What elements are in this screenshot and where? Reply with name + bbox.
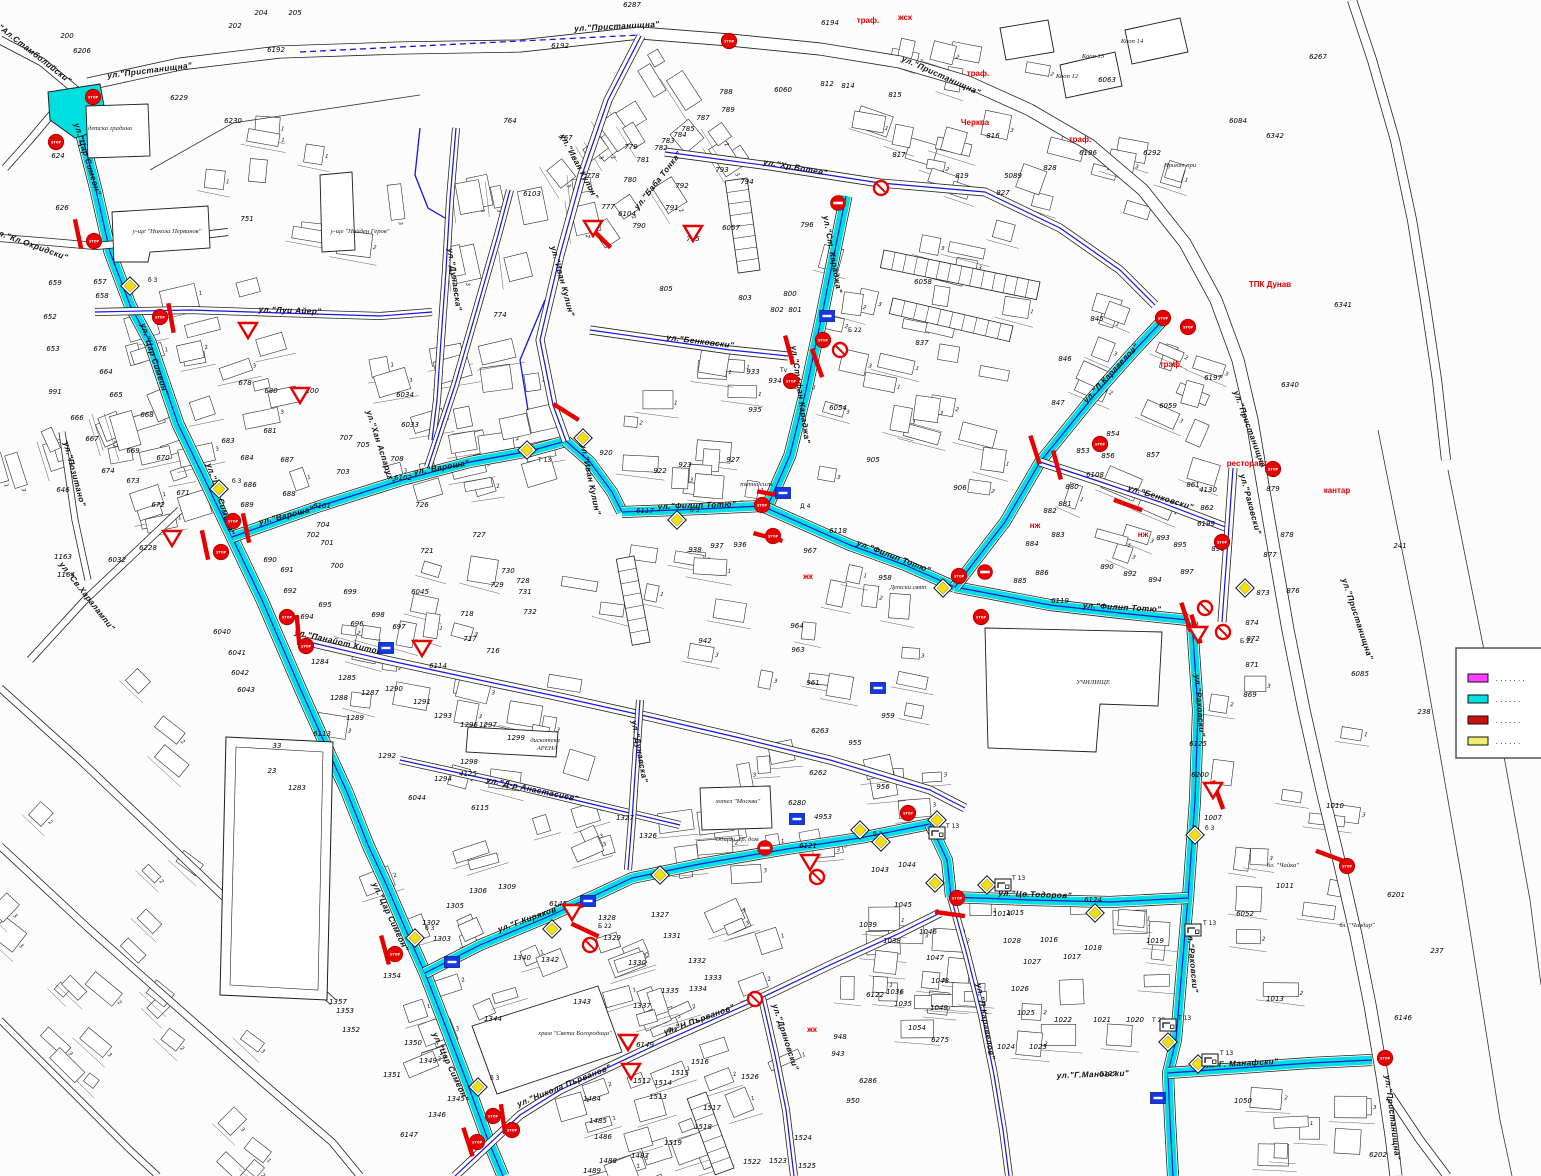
parcel-number: 793: [715, 166, 728, 174]
sign-code-label: б 3: [1205, 825, 1215, 832]
sign-code-label: б 3: [490, 1075, 500, 1082]
parcel-number: 671: [176, 489, 189, 497]
parcel-number: 6292: [1143, 149, 1161, 157]
parcel-number: 777: [601, 203, 615, 211]
parcel-number: 1010: [1326, 802, 1344, 810]
parcel-number: 884: [1025, 540, 1038, 548]
parcel-number: 624: [51, 152, 64, 160]
svg-text:3: 3: [1113, 351, 1119, 358]
stop-sign-icon: STOP: [1265, 461, 1281, 477]
parcel-number: 790: [632, 222, 646, 230]
svg-text:1: 1: [750, 1095, 755, 1102]
parcel-number: 1007: [1204, 814, 1222, 822]
parcel-number: 6084: [1229, 117, 1247, 125]
parcel-number: 694: [300, 613, 313, 621]
street-name-label: ул."Пристанищна": [1340, 576, 1375, 661]
parcel-number: 6063: [1098, 76, 1116, 84]
no-stopping-sign-icon: [748, 992, 762, 1006]
parcel-number: 927: [726, 456, 740, 464]
parcel-number: 6103: [523, 190, 541, 198]
parcel-number: 1513: [649, 1093, 667, 1101]
parcel-number: 1332: [688, 957, 706, 965]
parcel-number: 701: [320, 539, 333, 547]
place-label: хотел "Москва": [715, 798, 761, 805]
parcel-number: 1330: [628, 959, 646, 967]
parcel-number: 657: [93, 278, 107, 286]
svg-text:2: 2: [1284, 1095, 1288, 1101]
svg-text:3: 3: [932, 802, 937, 808]
red-facility-label: ТПК Дунав: [1249, 280, 1291, 289]
parcel-number: 802: [770, 306, 784, 314]
parcel-number: 684: [240, 454, 253, 462]
parcel-number: 801: [788, 306, 801, 314]
svg-text:2: 2: [607, 1081, 613, 1088]
parcel-number: 707: [339, 434, 353, 442]
no-stopping-sign-icon: [810, 870, 824, 884]
red-facility-label: траф.: [1160, 360, 1182, 369]
svg-text:3: 3: [1009, 128, 1014, 135]
parcel-number: 1519: [664, 1139, 682, 1147]
red-facility-label: траф.: [967, 69, 989, 78]
parcel-number: 1487: [631, 1152, 649, 1160]
svg-text:2: 2: [372, 245, 377, 251]
red-facility-label: жк: [806, 1025, 818, 1034]
parcel-number: 879: [1266, 485, 1280, 493]
parcel-number: 6119: [1051, 597, 1069, 605]
parcel-number: 692: [283, 587, 297, 595]
parcel-number: 1517: [703, 1104, 721, 1112]
parcel-number: 1028: [1003, 937, 1021, 945]
parcel-number: 6229: [170, 94, 188, 102]
svg-text:2: 2: [639, 420, 644, 426]
parcel-number: 1291: [413, 698, 431, 706]
svg-text:1: 1: [727, 569, 731, 575]
parcel-number: 890: [1100, 563, 1114, 571]
parcel-number: 1284: [311, 658, 329, 666]
parcel-number: 718: [460, 610, 474, 618]
legend-item: . . . . . . .: [1468, 674, 1525, 683]
parcel-number: 6043: [237, 686, 255, 694]
parcel-number: 6280: [788, 799, 806, 807]
no-entry-sign-icon: [831, 196, 846, 211]
info-plate-icon: [1202, 1054, 1218, 1066]
parcel-number: 923: [678, 461, 691, 469]
parcel-number: 6263: [811, 727, 829, 735]
svg-text:3: 3: [715, 652, 720, 658]
parcel-number: 1017: [1063, 953, 1081, 961]
parcel-number: 784: [673, 131, 686, 139]
parcel-number: 1018: [1084, 944, 1102, 952]
parcel-number: 721: [420, 547, 433, 555]
svg-text:1: 1: [281, 138, 285, 144]
red-facility-label: траф.: [857, 16, 879, 25]
svg-text:2: 2: [879, 596, 884, 602]
stop-sign-icon: STOP: [783, 373, 799, 389]
sign-code-label: Б 22: [1240, 638, 1254, 645]
parcel-number: 961: [806, 679, 819, 687]
parcel-number: 6104: [618, 210, 636, 218]
parcel-number: 6045: [411, 588, 429, 596]
parcel-number: 779: [624, 143, 638, 151]
parcel-number: 6044: [408, 794, 426, 802]
parcel-number: 828: [1043, 164, 1057, 172]
svg-text:1: 1: [632, 987, 637, 994]
legend-item-label: . . . . . .: [1496, 717, 1520, 725]
parcel-number: 819: [955, 172, 969, 180]
parcel-number: 877: [1263, 551, 1277, 559]
parcel-number: 920: [599, 449, 613, 457]
parcel-number: 33: [273, 742, 282, 750]
parcel-number: 991: [48, 388, 61, 396]
parcel-number: 800: [783, 290, 797, 298]
svg-text:STOP: STOP: [1380, 1056, 1391, 1060]
parcel-number: 959: [881, 712, 895, 720]
svg-text:STOP: STOP: [282, 615, 293, 619]
parcel-number: 1039: [859, 921, 877, 929]
street-ul-filip-totyu-6119: [955, 587, 1188, 620]
parcel-number: 1305: [446, 902, 464, 910]
parcel-number: 963: [791, 646, 804, 654]
parcel-number: 874: [1245, 619, 1258, 627]
parcel-number: 788: [719, 88, 733, 96]
place-label: Приют при: [1163, 162, 1197, 169]
sign-code-label: Т 13: [537, 457, 551, 464]
parcel-number: 1489: [583, 1167, 601, 1175]
svg-text:1: 1: [780, 933, 785, 940]
parcel-number: 6117: [636, 507, 654, 515]
parcel-number: 1344: [484, 1015, 502, 1023]
svg-text:STOP: STOP: [952, 896, 963, 900]
stop-sign-icon: STOP: [86, 233, 102, 249]
parcel-number: 6341: [1334, 301, 1352, 309]
oneway-sign-icon: [581, 896, 596, 907]
stop-sign-icon: STOP: [1377, 1050, 1393, 1066]
parcel-number: 6124: [1084, 896, 1102, 904]
parcel-number: 894: [1148, 576, 1161, 584]
svg-text:3: 3: [396, 221, 403, 226]
parcel-number: 6054: [829, 404, 847, 412]
parcel-number: 1352: [342, 1026, 360, 1034]
svg-text:3: 3: [1267, 684, 1272, 690]
parcel-number: 942: [698, 637, 712, 645]
red-facility-label: кантар: [1324, 486, 1351, 495]
parcel-number: 697: [392, 623, 406, 631]
svg-text:2: 2: [1299, 991, 1304, 997]
stop-sign-icon: STOP: [949, 890, 965, 906]
parcel-number: 943: [831, 1050, 844, 1058]
oneway-sign-icon: [379, 643, 394, 654]
parcel-number: 862: [1200, 504, 1214, 512]
sign-code-label: Т 13: [1177, 1015, 1191, 1022]
parcel-number: 688: [282, 490, 296, 498]
parcel-number: 1334: [689, 985, 707, 993]
parcel-number: 6228: [139, 544, 157, 552]
parcel-number: 933: [746, 368, 759, 376]
street-ul-ivan-kulin: [540, 36, 641, 441]
place-label: дискотека: [530, 737, 560, 744]
give-way-sign-icon: [619, 1035, 637, 1050]
parcel-number: 658: [95, 292, 109, 300]
parcel-number: 6149: [636, 1041, 654, 1049]
svg-text:1: 1: [863, 573, 867, 579]
svg-text:1: 1: [728, 370, 732, 376]
svg-text:3: 3: [940, 246, 945, 253]
stop-sign-icon: STOP: [213, 544, 229, 560]
svg-text:3: 3: [763, 868, 768, 874]
parcel-number: 6059: [1159, 402, 1177, 410]
parcel-number: 764: [503, 117, 516, 125]
parcel-number: 847: [1051, 399, 1065, 407]
parcel-number: 845: [1090, 315, 1104, 323]
parcel-number: 1343: [573, 998, 591, 1006]
street-name-label: ул."Хр.Ботев": [762, 157, 829, 177]
parcel-number: 1020: [1126, 1016, 1144, 1024]
parcel-number: 6125: [1189, 740, 1207, 748]
parcel-number: 6114: [429, 662, 447, 670]
svg-text:STOP: STOP: [51, 140, 62, 144]
parcel-number: 794: [740, 178, 753, 186]
parcel-number: 1289: [346, 714, 364, 722]
parcel-number: 704: [316, 521, 329, 529]
sign-code-label: Б 22: [598, 923, 612, 930]
parcel-number: 812: [820, 80, 834, 88]
parcel-number: 964: [790, 622, 803, 630]
svg-text:STOP: STOP: [976, 615, 987, 619]
stop-sign-icon: STOP: [1339, 858, 1355, 874]
parcel-number: 664: [99, 368, 112, 376]
parcel-number: 1025: [1017, 1009, 1035, 1017]
parcel-number: 670: [156, 454, 170, 462]
parcel-number: 906: [953, 484, 967, 492]
stop-sign-icon: STOP: [387, 946, 403, 962]
legend-item-label: . . . . . .: [1496, 696, 1520, 704]
parcel-number: 1043: [871, 866, 889, 874]
parcel-number: 1045: [894, 901, 912, 909]
svg-text:STOP: STOP: [1268, 467, 1279, 471]
legend: . .. . . . . . .. . . . . .. . . . . .. …: [1456, 648, 1541, 758]
red-facility-label: Черква: [961, 118, 990, 127]
sign-code-label: Т 13: [1202, 920, 1216, 927]
parcel-number: 1351: [383, 1071, 401, 1079]
parcel-number: 1024: [997, 1043, 1015, 1051]
svg-text:2: 2: [47, 819, 54, 826]
no-stopping-sign-icon: [583, 938, 597, 952]
svg-text:STOP: STOP: [488, 1114, 499, 1118]
svg-text:3: 3: [1224, 371, 1230, 378]
stop-sign-icon: STOP: [754, 497, 770, 513]
sign-code-label: Т 13: [1219, 1050, 1233, 1057]
parcel-number: 781: [636, 156, 649, 164]
stop-sign-icon: STOP: [485, 1108, 501, 1124]
info-plate-icon: [995, 879, 1011, 891]
parcel-number: 861: [1186, 481, 1199, 489]
parcel-number: 686: [243, 481, 257, 489]
stop-sign-icon: STOP: [48, 134, 64, 150]
parcel-number: 680: [264, 387, 278, 395]
svg-text:2: 2: [732, 1071, 738, 1078]
parcel-number: 1285: [338, 674, 356, 682]
no-entry-sign-icon: [978, 565, 993, 580]
svg-text:STOP: STOP: [1342, 864, 1353, 868]
place-label: у-ще "Никола Перванов": [132, 228, 202, 235]
parcel-number: 1331: [663, 932, 681, 940]
parcel-number: 934: [768, 377, 781, 385]
stop-sign-icon: STOP: [815, 332, 831, 348]
parcel-number: 1353: [336, 1007, 354, 1015]
sign-code-label: Тv: [779, 367, 788, 374]
svg-text:3: 3: [877, 302, 882, 309]
parcel-number: 6146: [1394, 1014, 1412, 1022]
parcel-number: 1297: [479, 721, 497, 729]
svg-text:2: 2: [646, 952, 652, 959]
parcel-number: 1027: [1023, 958, 1041, 966]
parcel-number: 6287: [623, 1, 641, 9]
svg-text:STOP: STOP: [757, 503, 768, 507]
stop-sign-icon: STOP: [225, 513, 241, 529]
svg-text:3: 3: [1178, 418, 1184, 425]
svg-text:3: 3: [19, 488, 26, 494]
parcel-number: 687: [280, 456, 294, 464]
parcel-number: 6202: [1369, 1151, 1387, 1159]
svg-text:STOP: STOP: [1183, 325, 1194, 329]
parcel-number: 626: [55, 204, 69, 212]
legend-item-label: . . . . . .: [1496, 738, 1520, 746]
parcel-number: 698: [371, 611, 385, 619]
svg-text:1: 1: [439, 626, 444, 633]
svg-text:3: 3: [280, 409, 285, 416]
stop-sign-icon: STOP: [85, 89, 101, 105]
stop-sign-icon: STOP: [900, 805, 916, 821]
place-label: Детски свят: [889, 584, 927, 591]
svg-text:STOP: STOP: [1158, 316, 1169, 320]
svg-text:3: 3: [1134, 164, 1139, 171]
parcel-number: 6041: [228, 649, 246, 657]
oneway-sign-icon: [1151, 1093, 1166, 1104]
parcel-number: 880: [1065, 483, 1079, 491]
place-label: Общин.-гр. дом: [715, 836, 759, 843]
parcel-number: 696: [350, 620, 364, 628]
parcel-number: 780: [623, 176, 637, 184]
svg-text:3: 3: [455, 1026, 461, 1033]
parcel-number: 1514: [654, 1079, 672, 1087]
parcel-number: 950: [846, 1097, 860, 1105]
place-label: УЧИЛИЩЕ: [1076, 679, 1110, 686]
no-stopping-sign-icon: [833, 343, 847, 357]
parcel-number: 857: [1146, 451, 1160, 459]
street-outer-road-ne: [1352, 0, 1446, 460]
svg-text:2: 2: [204, 344, 209, 351]
parcel-number: 892: [1123, 570, 1137, 578]
parcel-number: 668: [140, 411, 154, 419]
parcel-number: 1328: [598, 914, 616, 922]
parcel-number: 1342: [541, 956, 559, 964]
priority-road-sign-icon: [978, 876, 996, 894]
svg-text:3: 3: [12, 913, 19, 920]
sign-code-label: б 3: [148, 277, 158, 284]
parcel-number: 1516: [691, 1058, 709, 1066]
street-ul-l-karavelov-south: [951, 897, 1009, 1176]
parcel-number: 717: [463, 635, 477, 643]
parcel-number: 1303: [433, 935, 451, 943]
parcel-number: 1022: [1054, 1016, 1072, 1024]
red-facility-label: жк: [802, 572, 814, 581]
parcel-number: 1337: [633, 1002, 651, 1010]
give-way-sign-icon: [163, 531, 181, 546]
closure-bar-icon: [570, 922, 599, 939]
parcel-number: 674: [101, 467, 114, 475]
parcel-number: 895: [1173, 541, 1187, 549]
stop-sign-icon: STOP: [469, 1134, 485, 1150]
svg-text:STOP: STOP: [768, 534, 779, 538]
parcel-number: 937: [710, 542, 724, 550]
parcel-number: 202: [228, 22, 242, 30]
info-plate-icon: [1185, 924, 1201, 936]
stop-sign-icon: STOP: [1180, 319, 1196, 335]
svg-text:3: 3: [1373, 1105, 1377, 1111]
parcel-number: 204: [254, 9, 267, 17]
svg-text:3: 3: [943, 772, 948, 778]
svg-text:3: 3: [239, 1127, 246, 1134]
parcel-number: 6194: [821, 19, 839, 27]
parcel-number: 6121: [799, 842, 817, 850]
svg-text:3: 3: [1362, 812, 1367, 818]
parcel-number: 5089: [1004, 172, 1022, 180]
parcel-number: 1335: [661, 987, 679, 995]
svg-text:1: 1: [758, 392, 762, 398]
parcel-number: 956: [876, 783, 890, 791]
parcel-number: 886: [1035, 569, 1049, 577]
parcel-number: 792: [675, 182, 689, 190]
parcel-number: 856: [1101, 452, 1115, 460]
sign-code-label: б 3: [232, 478, 242, 485]
parcel-number: 6032: [108, 556, 126, 564]
svg-text:1: 1: [901, 918, 905, 924]
parcel-number: 691: [280, 566, 293, 574]
parcel-number: 667: [85, 435, 99, 443]
svg-text:2: 2: [1108, 390, 1114, 397]
parcel-number: 1327: [616, 814, 634, 822]
parcel-number: 1046: [919, 928, 937, 936]
parcel-texture: 1231133131113232133332222322332111113123…: [0, 19, 1377, 1176]
parcel-number: 789: [721, 106, 735, 114]
svg-text:1: 1: [1147, 916, 1151, 922]
give-way-sign-icon: [413, 641, 431, 656]
place-label: храм "Света Богородица": [537, 1030, 612, 1037]
parcel-number: 803: [738, 294, 751, 302]
parcel-number: 6113: [313, 730, 331, 738]
parcel-number: 958: [878, 574, 892, 582]
parcel-number: 676: [93, 345, 107, 353]
parcel-number: 708: [390, 455, 404, 463]
svg-text:3: 3: [409, 377, 414, 384]
parcel-number: 1327: [651, 911, 669, 919]
parcel-number: 1326: [639, 832, 657, 840]
parcel-number: 6040: [213, 628, 231, 636]
parcel-number: 678: [238, 379, 252, 387]
parcel-number: 6060: [774, 86, 792, 94]
svg-text:STOP: STOP: [228, 519, 239, 523]
oneway-sign-icon: [790, 814, 805, 825]
no-stopping-sign-icon: [874, 181, 888, 195]
parcel-number: 871: [1245, 661, 1258, 669]
parcel-number: 1019: [1146, 937, 1164, 945]
svg-text:1: 1: [198, 290, 203, 297]
parcel-number: 1524: [794, 1134, 812, 1142]
parcel-number: 659: [48, 279, 62, 287]
parcel-number: 1026: [1011, 985, 1029, 993]
parcel-number: 690: [263, 556, 277, 564]
no-stopping-sign-icon: [1198, 601, 1212, 615]
